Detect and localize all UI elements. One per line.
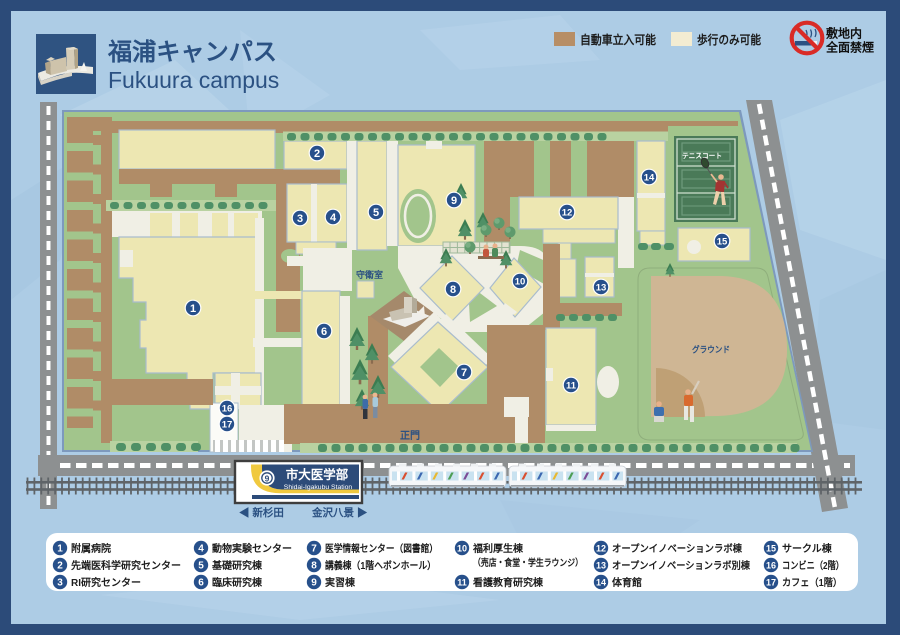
svg-text:歩行のみ可能: 歩行のみ可能 [697, 32, 761, 47]
svg-text:5: 5 [198, 560, 204, 571]
svg-text:12: 12 [596, 543, 606, 553]
svg-text:◀ 新杉田: ◀ 新杉田 [239, 506, 284, 519]
svg-text:自動車立入可能: 自動車立入可能 [580, 32, 656, 47]
svg-text:カフェ（1階）: カフェ（1階） [782, 576, 842, 589]
svg-text:守衛室: 守衛室 [356, 269, 383, 280]
svg-text:サークル棟: サークル棟 [782, 542, 833, 555]
svg-text:10: 10 [457, 543, 467, 553]
svg-text:11: 11 [457, 577, 467, 587]
svg-text:14: 14 [596, 577, 606, 587]
svg-text:2: 2 [314, 148, 320, 160]
svg-text:5: 5 [373, 207, 379, 219]
svg-text:臨床研究棟: 臨床研究棟 [212, 576, 263, 589]
svg-text:体育館: 体育館 [612, 576, 642, 589]
svg-text:福利厚生棟: 福利厚生棟 [472, 542, 524, 555]
svg-text:17: 17 [222, 419, 233, 430]
svg-text:敷地内: 敷地内 [826, 26, 862, 41]
svg-text:正門: 正門 [400, 430, 420, 442]
svg-text:9: 9 [451, 195, 457, 207]
svg-text:10: 10 [515, 276, 526, 287]
svg-text:7: 7 [311, 543, 317, 554]
svg-text:動物実験センター: 動物実験センター [212, 542, 292, 555]
svg-text:8: 8 [450, 284, 456, 296]
svg-text:RI研究センター: RI研究センター [71, 576, 141, 589]
svg-text:グラウンド: グラウンド [692, 344, 730, 355]
svg-text:Fukuura campus: Fukuura campus [108, 67, 279, 93]
svg-text:11: 11 [566, 380, 577, 391]
svg-text:市大医学部: 市大医学部 [286, 467, 349, 482]
svg-text:講義棟（1階ヘボンホール）: 講義棟（1階ヘボンホール） [325, 559, 436, 572]
svg-text:12: 12 [562, 207, 573, 218]
svg-text:先端医科学研究センター: 先端医科学研究センター [71, 559, 181, 572]
svg-text:6: 6 [321, 326, 327, 338]
svg-text:13: 13 [596, 282, 607, 293]
svg-text:福浦キャンパス: 福浦キャンパス [107, 38, 277, 66]
svg-text:17: 17 [766, 577, 776, 587]
svg-text:3: 3 [57, 577, 63, 588]
svg-text:（売店・食堂・学生ラウンジ）: （売店・食堂・学生ラウンジ） [473, 557, 583, 569]
svg-text:看護教育研究棟: 看護教育研究棟 [473, 576, 544, 589]
svg-text:7: 7 [461, 367, 467, 379]
svg-text:オープンイノベーションラボ別棟: オープンイノベーションラボ別棟 [612, 559, 751, 572]
svg-text:実習棟: 実習棟 [325, 576, 356, 589]
svg-text:14: 14 [644, 172, 655, 183]
svg-text:9: 9 [265, 473, 270, 483]
svg-text:16: 16 [222, 403, 233, 414]
svg-text:6: 6 [198, 577, 204, 588]
svg-text:金沢八景 ▶: 金沢八景 ▶ [311, 506, 368, 519]
svg-text:4: 4 [198, 543, 204, 554]
svg-text:附属病院: 附属病院 [71, 542, 111, 555]
svg-text:基礎研究棟: 基礎研究棟 [211, 559, 263, 572]
svg-text:13: 13 [596, 560, 606, 570]
svg-text:1: 1 [190, 303, 196, 315]
svg-text:15: 15 [766, 543, 776, 553]
svg-text:2: 2 [57, 560, 63, 571]
svg-text:16: 16 [766, 560, 776, 570]
svg-text:全面禁煙: 全面禁煙 [825, 39, 874, 54]
svg-text:8: 8 [311, 560, 317, 571]
svg-text:1: 1 [57, 543, 63, 554]
svg-text:コンビニ（2階）: コンビニ（2階） [782, 559, 844, 572]
svg-text:9: 9 [311, 577, 317, 588]
svg-text:3: 3 [297, 213, 303, 225]
svg-text:医学情報センター（図書館）: 医学情報センター（図書館） [325, 542, 438, 555]
svg-text:オープンイノベーションラボ棟: オープンイノベーションラボ棟 [612, 542, 743, 555]
svg-text:15: 15 [717, 236, 728, 247]
svg-text:Shidai-Igakubu Station: Shidai-Igakubu Station [284, 484, 353, 491]
svg-text:4: 4 [330, 212, 337, 224]
